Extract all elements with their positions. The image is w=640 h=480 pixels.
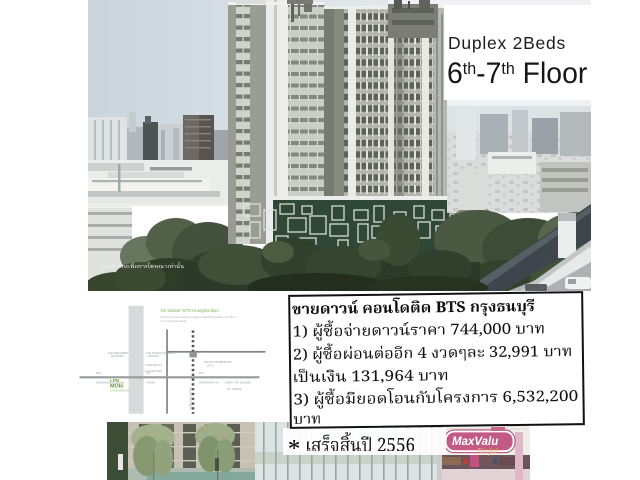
svg-text:SOI 4: SOI 4	[207, 363, 214, 367]
svg-text:WONGWIAN YAI: WONGWIAN YAI	[199, 381, 219, 385]
svg-text:from Krungthonburi: from Krungthonburi	[161, 319, 187, 323]
svg-text:CONDOMINIUM: CONDOMINIUM	[110, 389, 129, 393]
svg-text:STATION: STATION	[148, 354, 159, 358]
svg-text:Tanjai: Tanjai	[477, 447, 497, 456]
svg-text:TAKSIN: TAKSIN	[146, 381, 155, 385]
svg-text:CHAROEN 14: CHAROEN 14	[145, 363, 162, 367]
svg-text:KRUNGTHONBURI: KRUNGTHONBURI	[189, 387, 193, 410]
svg-text:SATHORN: SATHORN	[111, 354, 124, 358]
svg-text:SOI: SOI	[146, 371, 151, 375]
svg-text:SMART RD. SQUARE: SMART RD. SQUARE	[225, 381, 251, 385]
svg-text:LPN: LPN	[110, 378, 120, 383]
svg-text:KRUNGTHONBURI RD.: KRUNGTHONBURI RD.	[204, 360, 232, 364]
svg-text:BTS: BTS	[96, 371, 101, 375]
svg-text:On Station* BTS Krungthonburi: On Station* BTS Krungthonburi	[161, 308, 219, 313]
svg-text:ST. JOSEPH: ST. JOSEPH	[227, 387, 242, 391]
svg-text:BTS: BTS	[199, 371, 204, 375]
